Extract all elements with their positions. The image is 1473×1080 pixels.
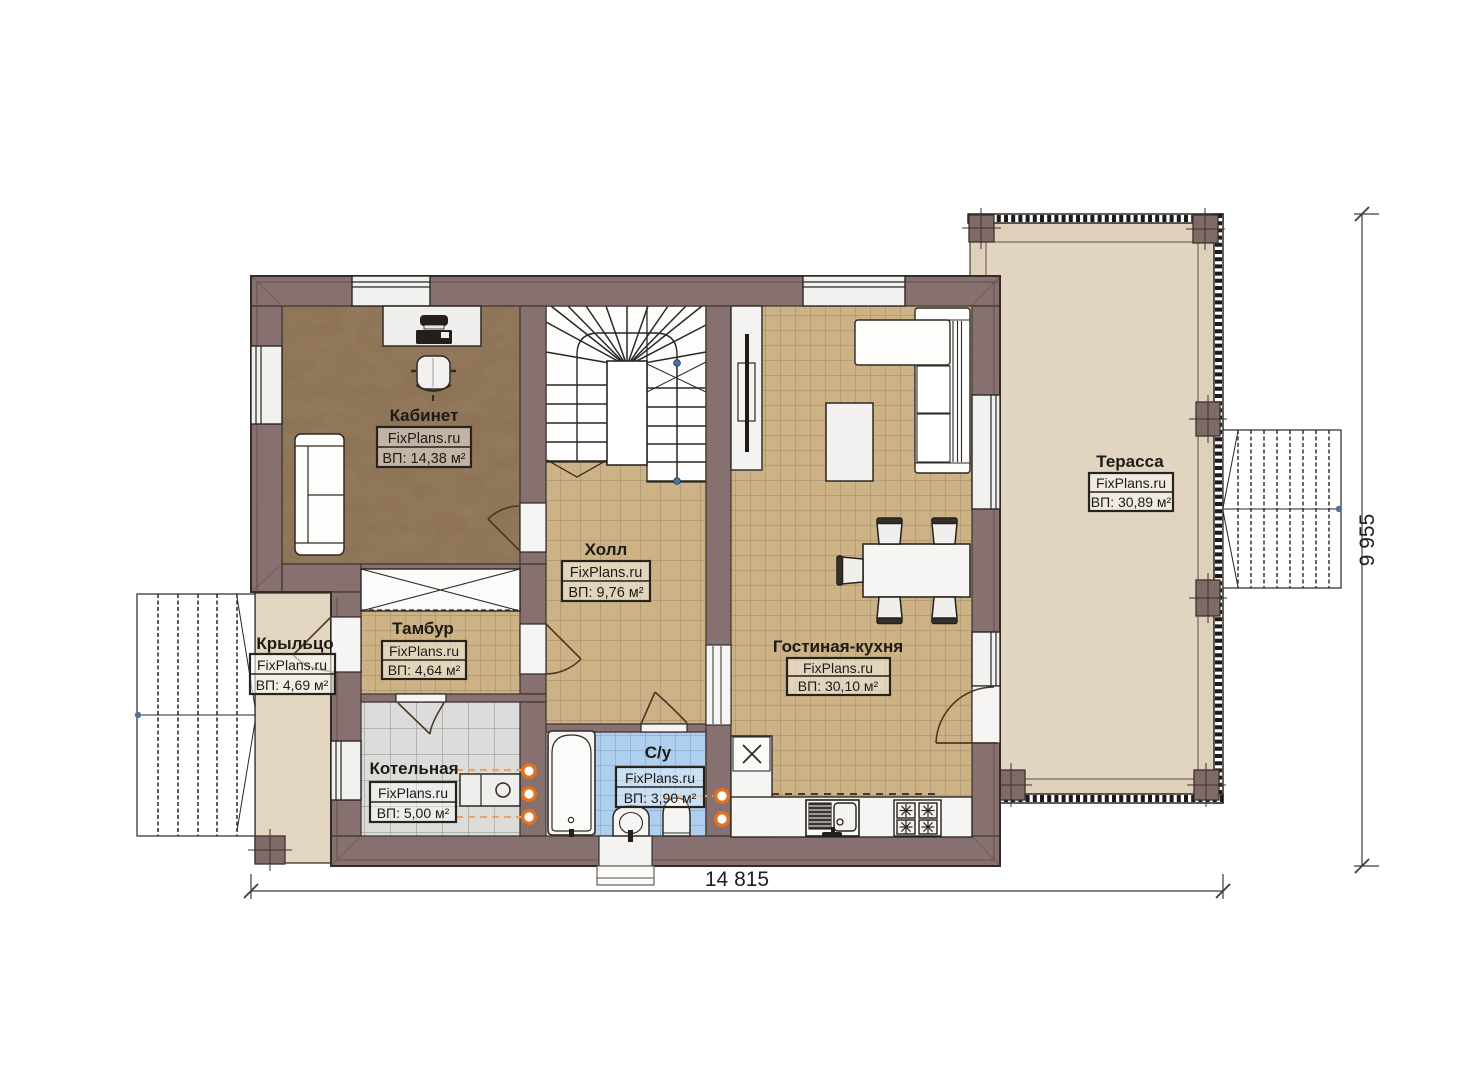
svg-text:ВП: 30,10 м²: ВП: 30,10 м² xyxy=(798,678,879,694)
svg-text:FixPlans.ru: FixPlans.ru xyxy=(389,643,459,659)
svg-text:FixPlans.ru: FixPlans.ru xyxy=(1096,475,1166,491)
svg-text:ВП: 4,69 м²: ВП: 4,69 м² xyxy=(256,677,329,693)
svg-text:Холл: Холл xyxy=(585,540,628,559)
svg-text:FixPlans.ru: FixPlans.ru xyxy=(378,785,448,801)
svg-text:Терасса: Терасса xyxy=(1096,452,1164,471)
svg-text:ВП: 4,64 м²: ВП: 4,64 м² xyxy=(388,662,461,678)
svg-text:FixPlans.ru: FixPlans.ru xyxy=(388,431,461,447)
svg-text:Крыльцо: Крыльцо xyxy=(256,634,333,653)
svg-text:ВП: 3,90 м²: ВП: 3,90 м² xyxy=(624,790,697,806)
svg-text:Котельная: Котельная xyxy=(369,759,458,778)
svg-text:ВП: 30,89 м²: ВП: 30,89 м² xyxy=(1091,494,1172,510)
svg-text:FixPlans.ru: FixPlans.ru xyxy=(625,770,695,786)
svg-text:9 955: 9 955 xyxy=(1356,514,1379,567)
svg-text:С/у: С/у xyxy=(645,743,672,762)
svg-text:Гостиная-кухня: Гостиная-кухня xyxy=(773,637,903,656)
svg-text:FixPlans.ru: FixPlans.ru xyxy=(570,565,643,581)
svg-text:Тамбур: Тамбур xyxy=(392,619,454,638)
svg-text:ВП: 14,38 м²: ВП: 14,38 м² xyxy=(382,451,465,467)
svg-text:14 815: 14 815 xyxy=(705,868,769,891)
svg-text:FixPlans.ru: FixPlans.ru xyxy=(803,660,873,676)
svg-text:FixPlans.ru: FixPlans.ru xyxy=(257,657,327,673)
svg-text:ВП: 5,00 м²: ВП: 5,00 м² xyxy=(377,805,450,821)
svg-text:ВП: 9,76 м²: ВП: 9,76 м² xyxy=(568,585,643,601)
svg-text:Кабинет: Кабинет xyxy=(390,406,459,425)
